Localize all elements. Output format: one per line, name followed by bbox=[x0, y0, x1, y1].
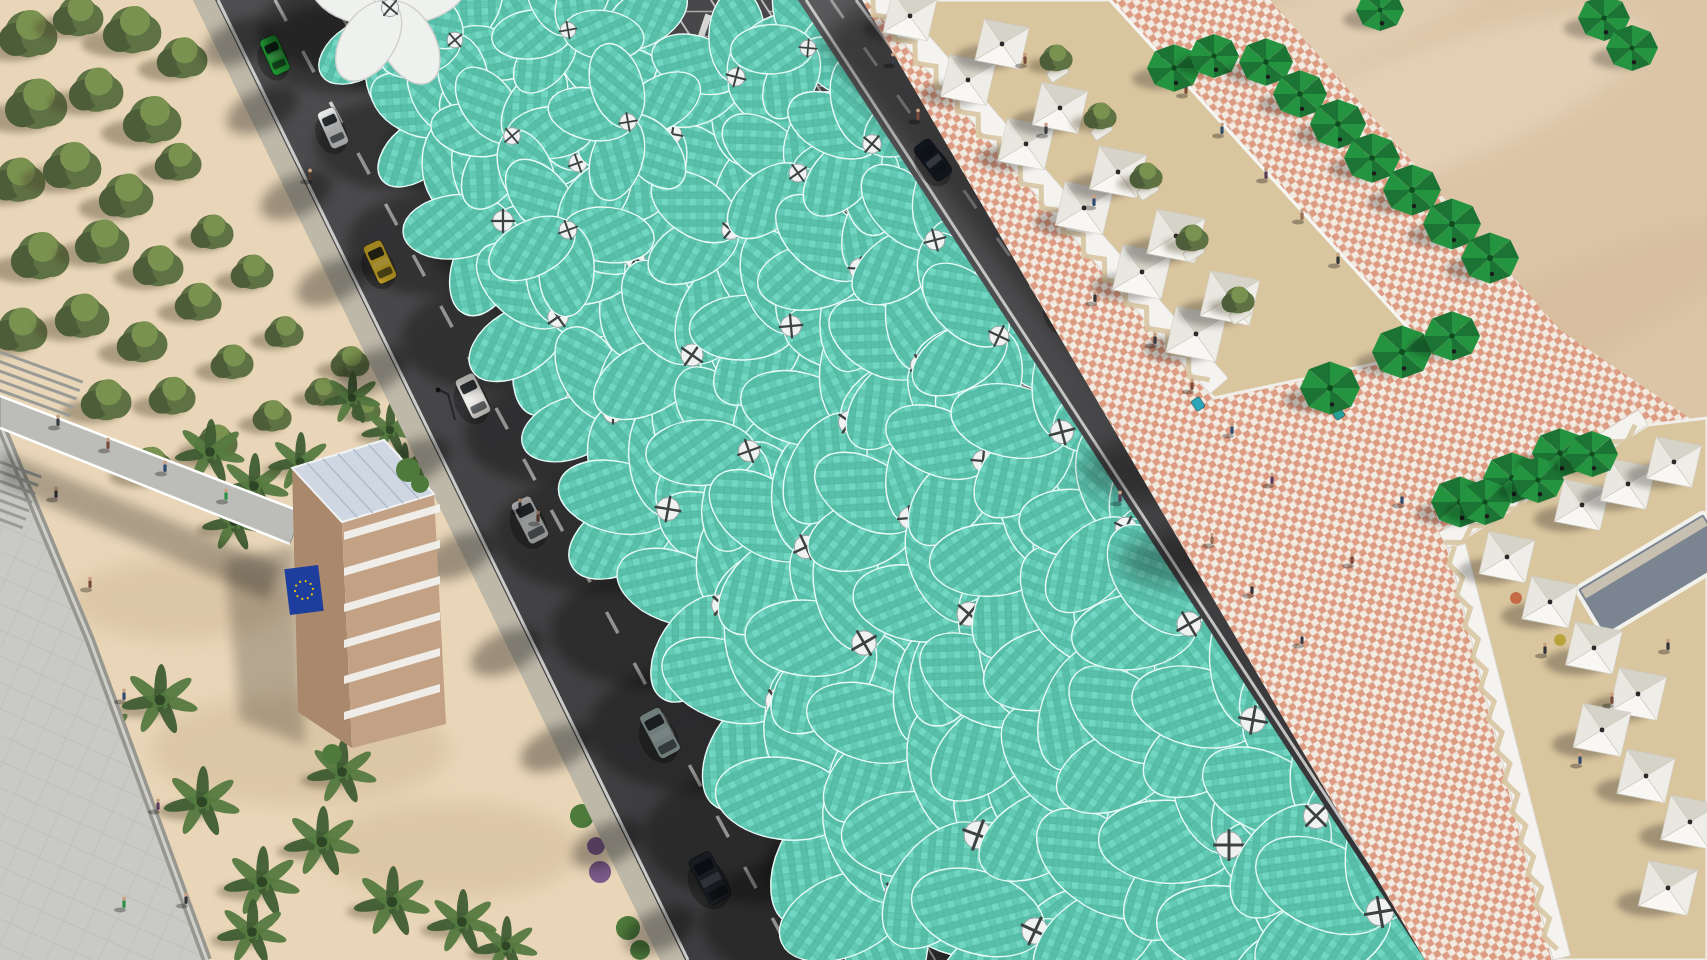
eu-flag bbox=[284, 565, 323, 615]
roof-garden bbox=[411, 475, 429, 493]
flower-bush bbox=[1510, 592, 1522, 604]
table-icon bbox=[1000, 42, 1005, 47]
table-icon bbox=[1592, 646, 1597, 651]
table-icon bbox=[1058, 106, 1063, 111]
table-icon bbox=[1140, 270, 1145, 275]
table-icon bbox=[1600, 728, 1605, 733]
table-icon bbox=[966, 78, 971, 83]
table-icon bbox=[1505, 555, 1510, 560]
table-icon bbox=[1024, 142, 1029, 147]
table-icon bbox=[908, 14, 913, 19]
table-icon bbox=[1194, 332, 1199, 337]
table-icon bbox=[1644, 774, 1649, 779]
table-icon bbox=[1688, 820, 1693, 825]
table-icon bbox=[1636, 692, 1641, 697]
aerial-render-scene bbox=[0, 0, 1707, 960]
table-icon bbox=[1548, 600, 1553, 605]
flower-bush bbox=[1554, 634, 1566, 646]
scene-canvas bbox=[0, 0, 1707, 960]
table-icon bbox=[1626, 482, 1631, 487]
table-icon bbox=[1672, 460, 1677, 465]
table-icon bbox=[1666, 886, 1671, 891]
table-icon bbox=[1116, 170, 1121, 175]
